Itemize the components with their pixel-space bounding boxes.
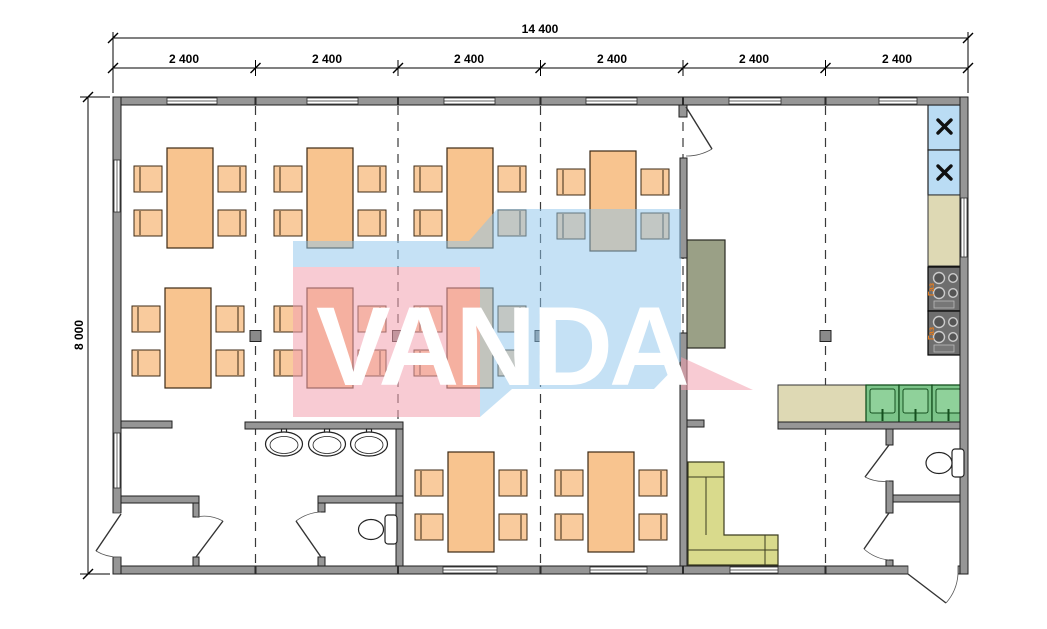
wall-sink-icon [351, 429, 388, 456]
dining-table [132, 288, 244, 388]
stove-icon: Газ [927, 311, 961, 355]
watermark-text: VANDA [316, 284, 687, 409]
cabinet [687, 240, 725, 348]
dim-total-width: 14 400 [522, 22, 559, 36]
fridge-icon [928, 105, 961, 150]
floor-plan-canvas: Газ Газ [0, 0, 1047, 629]
door-swing [864, 513, 889, 560]
kitchen-group: Газ Газ [778, 105, 965, 427]
couch [688, 462, 778, 565]
stove-label: Газ [927, 283, 936, 296]
stove-icon: Газ [927, 267, 961, 311]
kitchen-sink-icon [899, 385, 932, 427]
kitchen-sink-icon [866, 385, 899, 427]
door-swing [908, 574, 958, 603]
fridge-icon [928, 150, 961, 195]
dim-segment: 2 400 [312, 52, 342, 66]
toilet-icon [926, 449, 964, 477]
dining-table [555, 452, 667, 552]
dining-table [274, 148, 386, 248]
door-swing [196, 516, 223, 557]
watermark-pink-arrow [681, 357, 753, 390]
door-swing [865, 445, 889, 481]
dining-table [134, 148, 246, 248]
dim-height: 8 000 [72, 320, 86, 350]
door-swing [296, 512, 321, 557]
stove-label: Газ [927, 327, 936, 340]
dim-segment: 2 400 [454, 52, 484, 66]
wall-sink-icon [309, 429, 346, 456]
dining-table [415, 452, 527, 552]
toilet-icon [359, 515, 398, 544]
dim-segment: 2 400 [169, 52, 199, 66]
dim-segment: 2 400 [597, 52, 627, 66]
kitchen-counter [778, 385, 866, 425]
dim-segment: 2 400 [882, 52, 912, 66]
kitchen-counter [928, 195, 961, 266]
floor-plan-page: Газ Газ [0, 0, 1047, 629]
wall-sink-icon [266, 429, 303, 456]
dim-segment: 2 400 [739, 52, 769, 66]
door-swing [686, 107, 712, 156]
